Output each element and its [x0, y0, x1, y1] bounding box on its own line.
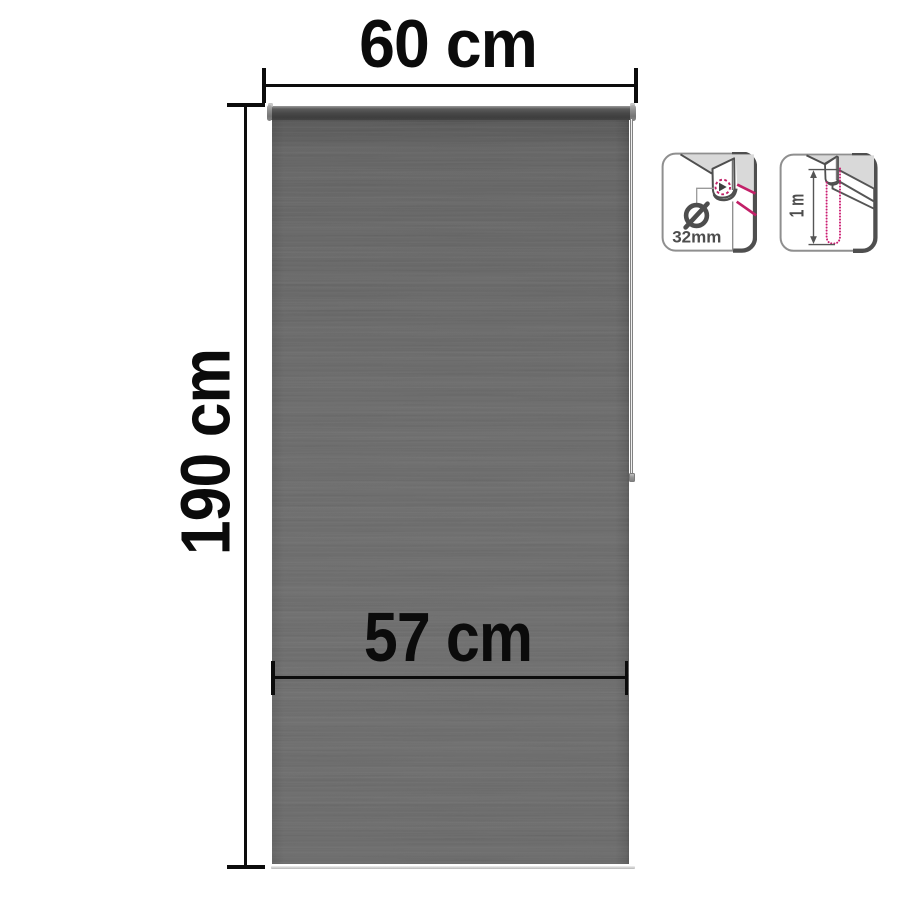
svg-text:32mm: 32mm: [672, 227, 721, 246]
svg-text:1 m: 1 m: [787, 194, 809, 218]
